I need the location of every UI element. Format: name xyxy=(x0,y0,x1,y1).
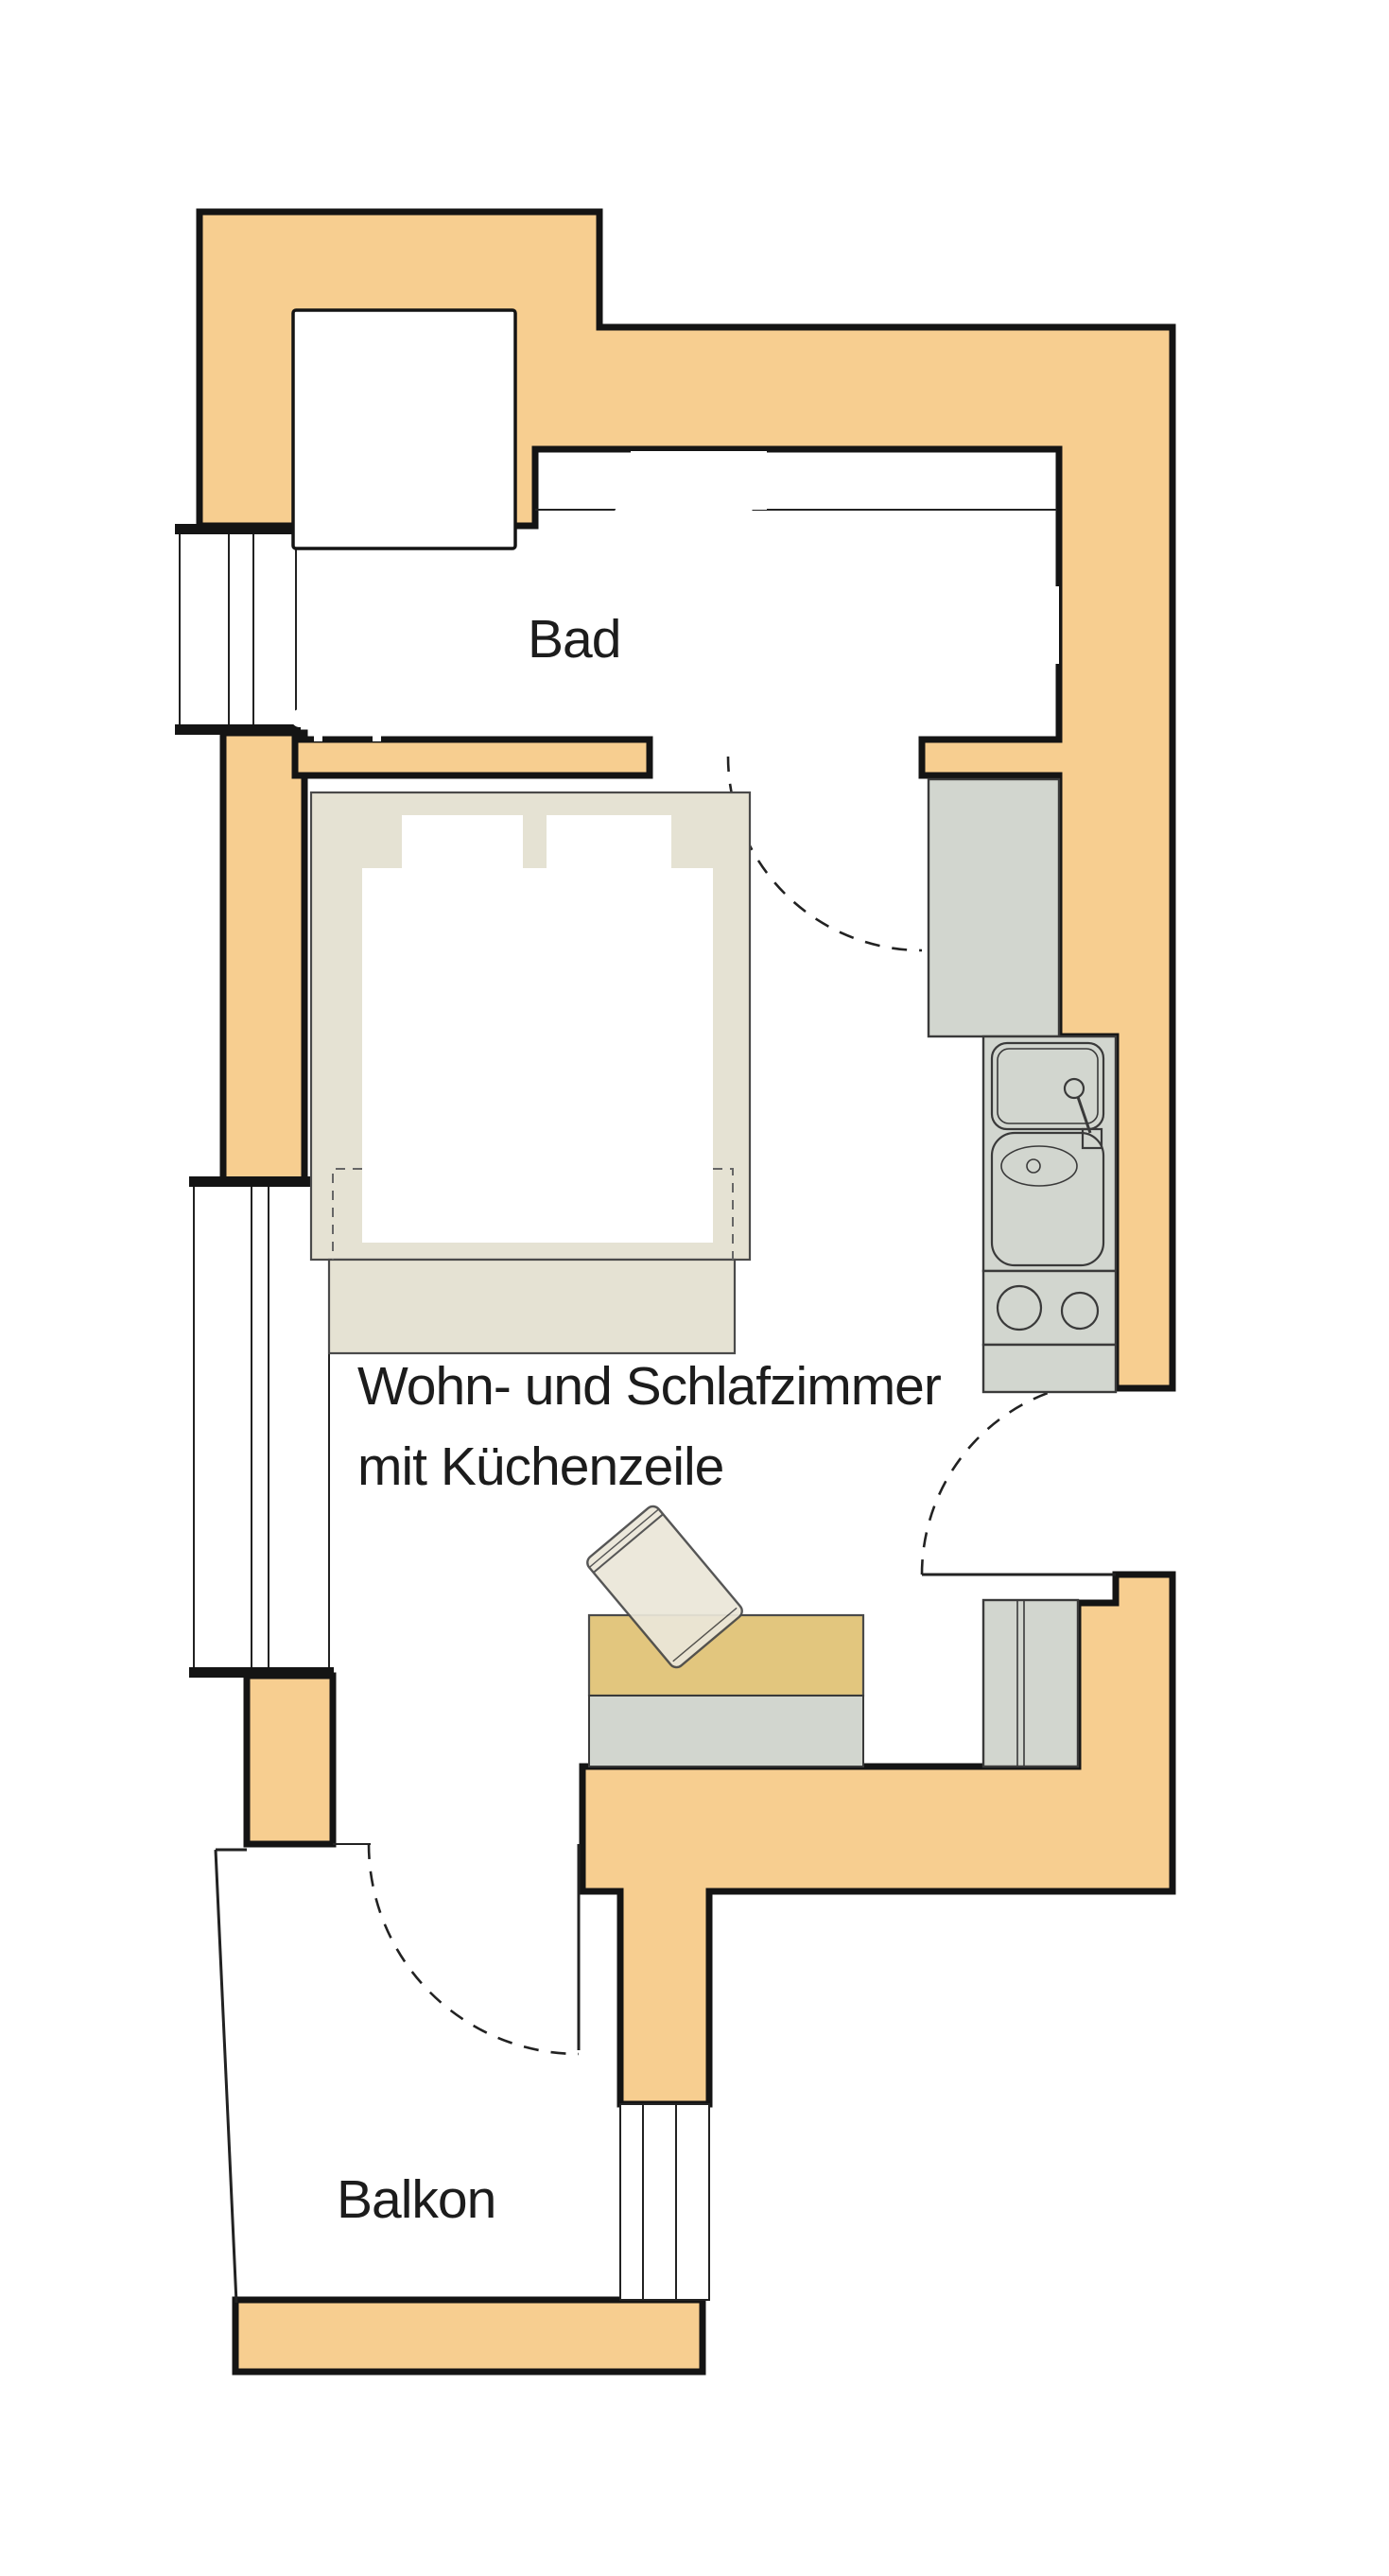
kitchen-stove xyxy=(983,1271,1116,1392)
bed-pillow-left xyxy=(402,815,523,869)
bed-mattress xyxy=(362,868,713,1243)
living-room-label: Wohn- und Schlafzimmer mit Küchenzeile xyxy=(357,1360,941,1521)
balcony-label: Balkon xyxy=(337,2173,495,2227)
living-room-label-line1: Wohn- und Schlafzimmer xyxy=(357,1360,941,1414)
balcony-window xyxy=(620,2104,709,2300)
toilet-icon xyxy=(934,582,1059,669)
wall-bad-divider-left xyxy=(295,740,650,775)
wall-balcony-bottom xyxy=(235,2300,703,2372)
bed-pillow-right xyxy=(547,815,671,869)
shower-icon xyxy=(293,310,515,548)
kitchen-sink-unit xyxy=(983,1036,1116,1271)
wall-left-column xyxy=(223,733,304,1182)
bathroom-door-swing-arc xyxy=(728,757,922,950)
bathroom-label: Bad xyxy=(528,613,620,667)
entrance-door-swing-arc xyxy=(922,1381,1116,1575)
floor-plan-canvas: Bad Wohn- und Schlafzimmer mit Küchenzei… xyxy=(0,0,1389,2576)
wardrobe xyxy=(983,1600,1078,1767)
wall-balcony-left-pier xyxy=(247,1676,333,1844)
kitchen-tall-cabinet xyxy=(929,779,1059,1036)
balcony-railing xyxy=(216,1850,247,2303)
washbasin-icon xyxy=(535,451,1057,555)
bed xyxy=(311,792,750,1353)
bench xyxy=(589,1696,863,1767)
bathroom-window xyxy=(175,524,301,735)
kitchen-base-unit xyxy=(983,1345,1116,1392)
floor-plan-drawing xyxy=(0,0,1389,2576)
bed-footboard xyxy=(329,1260,735,1353)
balcony-door-swing-arc xyxy=(369,1844,579,2054)
living-room-label-line2: mit Küchenzeile xyxy=(357,1440,941,1494)
